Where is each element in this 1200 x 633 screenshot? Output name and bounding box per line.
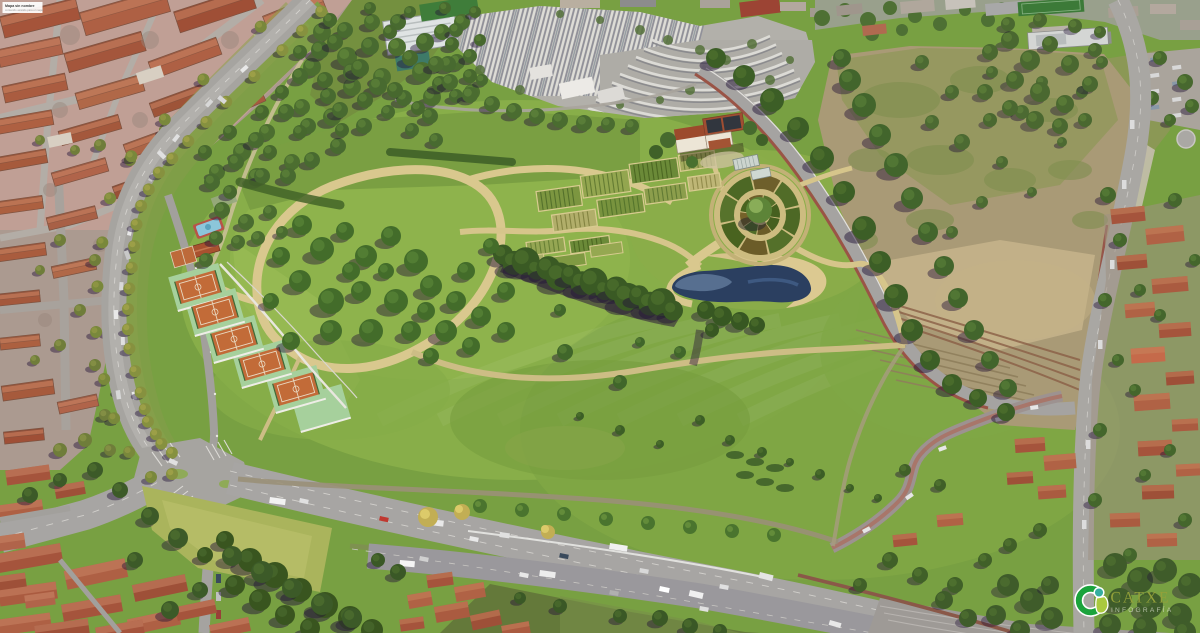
svg-text:Mapa sin nombre: Mapa sin nombre [5,4,35,8]
svg-text:CATXE: CATXE [1111,590,1171,607]
svg-text:INFOGRAFÍA: INFOGRAFÍA [1111,605,1173,614]
svg-text:contenido asistido para el map: contenido asistido para el mapa [5,8,43,12]
